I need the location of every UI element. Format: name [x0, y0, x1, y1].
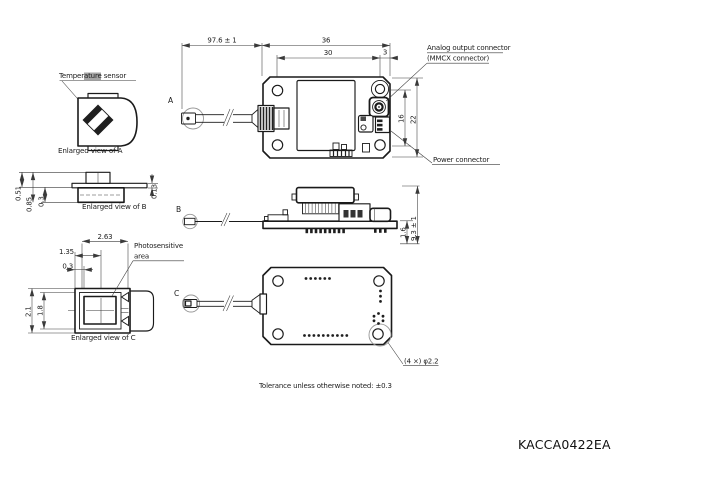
mounting-hole: [373, 329, 383, 339]
mounting-hole: [374, 276, 384, 286]
callout-temperature-sensor: Temperature sensor: [58, 72, 126, 80]
smd-component: [359, 116, 374, 133]
callout-photosensitive-1: Photosensitive: [134, 242, 183, 250]
cable-break-mark: [223, 109, 230, 126]
view-marker-b: B: [176, 205, 181, 214]
view-marker-a: A: [168, 96, 174, 105]
tolerance-note: Tolerance unless otherwise noted: ±0.3: [258, 382, 392, 390]
enlarged-view-c: Photosensitive area 2.63 1.35 0.3 2.1 1.…: [25, 233, 185, 342]
bottom-view: C: [174, 268, 439, 366]
dim-window-width: 2.63: [98, 233, 113, 241]
power-connector: [376, 117, 390, 133]
dim-cable-length: 97.6 ± 1: [207, 37, 236, 45]
dim-window-height: 1.8: [37, 305, 45, 316]
image-sensor-package: [297, 188, 355, 203]
caption-enlarged-a: Enlarged view of A: [58, 146, 123, 155]
cable-connector: [258, 106, 289, 132]
dim-total-height: 0.85: [26, 197, 34, 212]
title-block: Tolerance unless otherwise noted: ±0.3 K…: [258, 382, 611, 452]
enlarged-view-a: Temperature sensor Enlarged view of A: [58, 72, 137, 155]
enlarged-view-b: 0.51 0.85 0.3 0.13 Enlarged view of B: [15, 172, 159, 212]
mounting-hole: [273, 276, 283, 286]
leader-line: [391, 131, 432, 163]
connector-block-side: [339, 204, 391, 222]
cable-strain-relief: [252, 110, 258, 128]
drawing-sheet: Temperature sensor Enlarged view of A: [0, 0, 701, 479]
dim-flange-thickness: 0.13: [151, 184, 159, 199]
mounting-hole: [272, 140, 282, 150]
dim-overall-height: 9.3 ± 1: [410, 216, 418, 241]
leader-line: [388, 343, 403, 365]
dim-edge-offset: 0.3: [62, 263, 73, 271]
technical-drawing-canvas: Temperature sensor Enlarged view of A: [0, 0, 701, 479]
dim-board-height: 22: [410, 115, 418, 124]
callout-photosensitive-2: area: [134, 253, 149, 261]
pcb-edge: [263, 221, 397, 228]
dim-connector-spacing: 16: [398, 114, 406, 123]
caption-enlarged-c: Enlarged view of C: [71, 333, 136, 342]
mounting-hole: [375, 140, 385, 150]
callout-hole-spec: (4 ×) φ2.2: [404, 358, 438, 366]
dim-board-thickness: 1.6: [400, 227, 408, 238]
part-number: KACCA0422EA: [518, 437, 611, 452]
side-view: B: [176, 186, 420, 244]
detail-balloon-a: [183, 108, 204, 129]
view-marker-c: C: [174, 289, 179, 298]
dim-body-height: 2.1: [25, 306, 33, 317]
cable-connector-bottom: [260, 294, 267, 314]
dim-edge-distance: 3: [383, 49, 387, 57]
callout-power-connector: Power connector: [433, 156, 489, 164]
leader-line: [386, 63, 427, 101]
dim-center-offset: 1.35: [59, 248, 74, 256]
caption-enlarged-b: Enlarged view of B: [82, 202, 147, 211]
sensor-cap: [130, 291, 154, 331]
mmcx-connector: [370, 98, 389, 117]
mounting-hole: [272, 85, 282, 95]
top-view: A Analog output connector (MMCX connecto…: [168, 37, 511, 165]
callout-analog-output-2: (MMCX connector): [427, 55, 490, 63]
dim-board-width: 36: [322, 37, 331, 45]
dim-inner-height: 0.3: [38, 196, 46, 207]
shield-can: [297, 81, 355, 151]
mounting-hole: [375, 84, 384, 93]
dim-hole-spacing: 30: [324, 49, 333, 57]
callout-analog-output-1: Analog output connector: [427, 44, 511, 52]
dim-top-height: 0.51: [15, 186, 23, 201]
mounting-hole: [273, 329, 283, 339]
